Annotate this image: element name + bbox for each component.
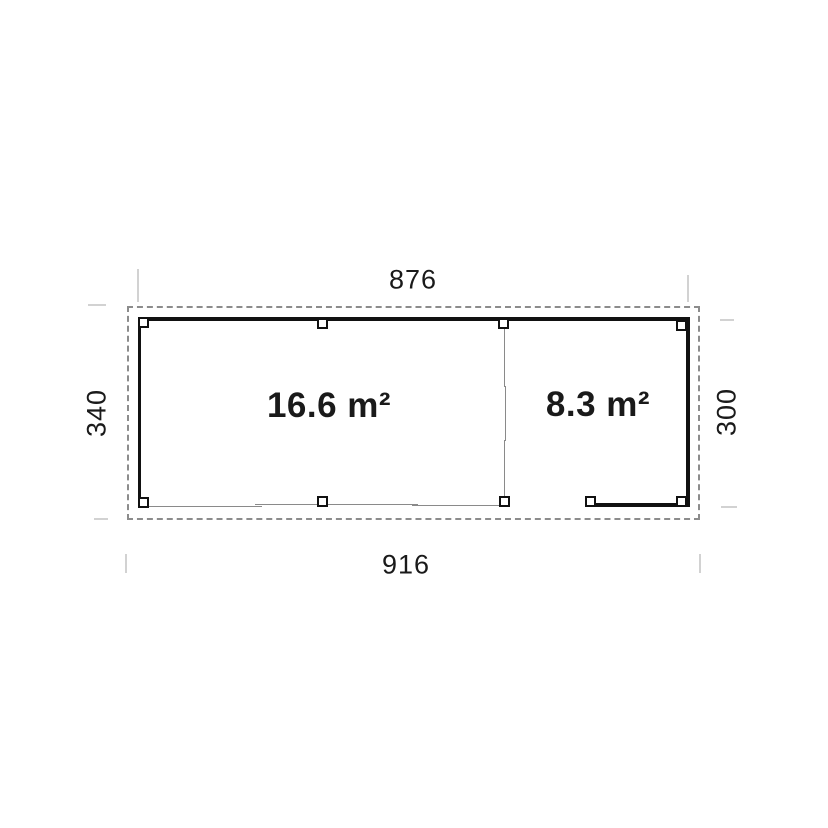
post-marker (499, 496, 510, 507)
floor-edge-line (412, 505, 502, 506)
wall-right (686, 317, 690, 507)
floor-edge-line (255, 504, 418, 505)
post-marker (498, 318, 509, 329)
room-area-label-large: 16.6 m² (267, 386, 391, 426)
wall-bottom-right (588, 503, 690, 507)
partition-wall-line (504, 440, 505, 497)
post-marker (676, 320, 687, 331)
dimension-tick (88, 304, 106, 306)
dimension-tick (721, 506, 737, 508)
dimension-tick (94, 518, 108, 520)
floor-plan: 876 916 340 300 16.6 m² 8.3 m² (0, 0, 828, 828)
post-marker (317, 318, 328, 329)
dimension-label-right: 300 (712, 388, 743, 436)
dimension-tick (137, 269, 139, 302)
floor-edge-line (148, 506, 262, 507)
partition-wall-line (505, 386, 506, 441)
room-area-label-small: 8.3 m² (546, 385, 650, 425)
wall-left (138, 317, 141, 507)
dimension-label-bottom: 916 (382, 550, 430, 581)
dimension-label-top: 876 (389, 265, 437, 296)
dimension-tick (125, 554, 127, 573)
post-marker (676, 496, 687, 507)
dimension-tick (687, 275, 689, 302)
partition-wall-line (504, 329, 505, 387)
dimension-tick (699, 554, 701, 573)
post-marker (138, 317, 149, 328)
post-marker (585, 496, 596, 507)
wall-top (138, 317, 690, 321)
post-marker (138, 497, 149, 508)
dimension-label-left: 340 (82, 389, 113, 437)
post-marker (317, 496, 328, 507)
dimension-tick (720, 319, 734, 321)
